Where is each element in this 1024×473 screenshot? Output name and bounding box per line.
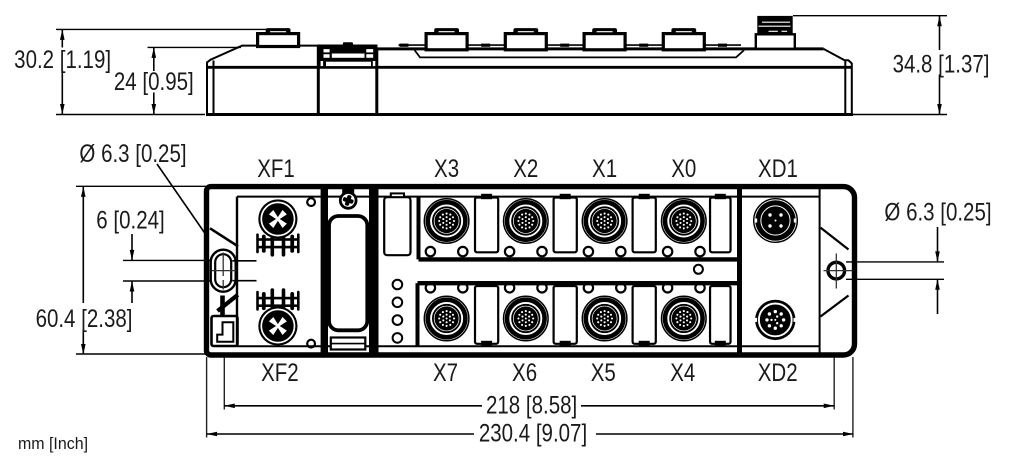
svg-text:30.2 [1.19]: 30.2 [1.19] xyxy=(14,45,111,73)
svg-text:34.8 [1.37]: 34.8 [1.37] xyxy=(893,50,990,78)
svg-text:X7: X7 xyxy=(433,358,458,386)
svg-text:Ø 6.3 [0.25]: Ø 6.3 [0.25] xyxy=(79,139,186,167)
svg-text:Ø 6.3 [0.25]: Ø 6.3 [0.25] xyxy=(884,198,991,226)
svg-text:XF1: XF1 xyxy=(257,154,295,182)
svg-text:X6: X6 xyxy=(512,358,537,386)
svg-text:218 [8.58]: 218 [8.58] xyxy=(486,391,577,419)
svg-text:XD1: XD1 xyxy=(758,154,798,182)
svg-text:X2: X2 xyxy=(513,154,538,182)
svg-text:60.4 [2.38]: 60.4 [2.38] xyxy=(36,304,133,332)
svg-text:XD2: XD2 xyxy=(758,358,798,386)
svg-text:6 [0.24]: 6 [0.24] xyxy=(96,206,164,234)
svg-text:X0: X0 xyxy=(671,154,696,182)
svg-text:XF2: XF2 xyxy=(261,358,299,386)
svg-text:X5: X5 xyxy=(591,358,616,386)
svg-text:230.4 [9.07]: 230.4 [9.07] xyxy=(479,419,587,447)
svg-text:X4: X4 xyxy=(670,358,695,386)
svg-text:mm [Inch]: mm [Inch] xyxy=(18,435,88,453)
svg-text:X1: X1 xyxy=(592,154,617,182)
svg-text:X3: X3 xyxy=(434,154,459,182)
svg-text:24 [0.95]: 24 [0.95] xyxy=(114,67,194,95)
